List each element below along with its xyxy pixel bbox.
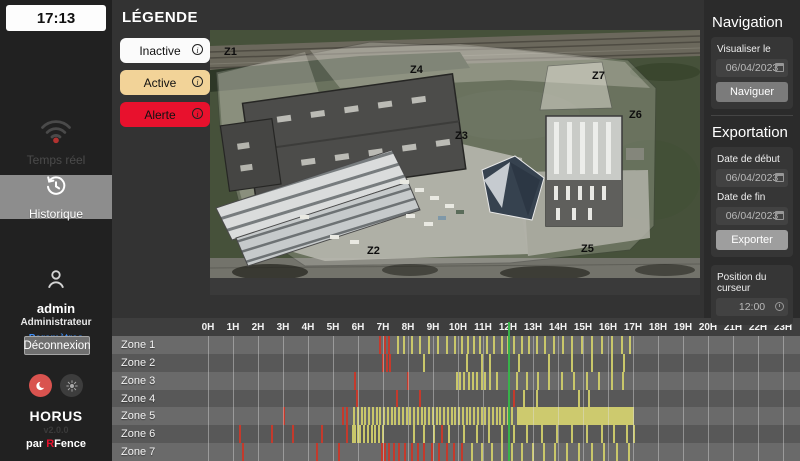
user-block: admin Administrateur Paramètres (0, 265, 112, 346)
active-mark (601, 425, 603, 443)
wifi-icon (39, 118, 73, 149)
alert-mark (384, 443, 386, 461)
legend-button-inactive[interactable]: Inactive i (120, 38, 210, 63)
zone-row-label: Zone 2 (121, 357, 155, 369)
timeline-rows: Zone 1Zone 2Zone 3Zone 4Zone 5Zone 6Zone… (112, 336, 800, 461)
active-mark (398, 407, 400, 425)
active-mark (503, 407, 505, 425)
hour-label: 10H (445, 322, 471, 333)
active-mark (486, 336, 488, 354)
active-mark (611, 354, 613, 372)
alert-mark (513, 390, 515, 408)
username: admin (0, 301, 112, 316)
theme-toggles (0, 374, 112, 397)
alert-mark (431, 443, 433, 461)
active-mark (501, 443, 503, 461)
active-mark (499, 407, 501, 425)
active-mark (496, 407, 498, 425)
active-mark (436, 407, 438, 425)
active-mark (406, 407, 408, 425)
hour-label: 14H (545, 322, 571, 333)
alert-mark (461, 443, 463, 461)
cursor-box: Position du curseur 12:00 (711, 265, 793, 325)
active-mark (413, 407, 415, 425)
active-mark (481, 354, 483, 372)
alert-mark (283, 407, 285, 425)
active-mark (616, 443, 618, 461)
timeline-row-zone-2[interactable]: Zone 2 (112, 354, 800, 372)
active-mark (573, 372, 575, 390)
cursor-position-label: Position du curseur (717, 272, 788, 294)
navigate-button[interactable]: Naviguer (716, 82, 788, 102)
zone-row-label: Zone 6 (121, 428, 155, 440)
alert-mark (239, 425, 241, 443)
cursor-time-input[interactable]: 12:00 (716, 298, 788, 316)
active-mark (586, 372, 588, 390)
active-mark (382, 425, 384, 443)
view-date-label: Visualiser le (717, 44, 788, 55)
alert-mark (271, 425, 273, 443)
hour-label: 3H (270, 322, 296, 333)
active-mark (376, 407, 378, 425)
active-mark (467, 336, 469, 354)
active-mark (364, 407, 366, 425)
active-mark (368, 407, 370, 425)
active-mark (417, 407, 419, 425)
active-mark (532, 443, 534, 461)
zone-row-label: Zone 5 (121, 410, 155, 422)
timeline-row-zone-5[interactable]: Zone 5 (112, 407, 800, 425)
user-icon (42, 280, 70, 297)
active-mark (459, 372, 461, 390)
calendar-icon[interactable] (775, 211, 784, 220)
active-mark (411, 336, 413, 354)
active-mark (526, 372, 528, 390)
active-mark (622, 372, 624, 390)
sidebar-item-label: Historique (29, 207, 83, 221)
active-mark (357, 407, 359, 425)
alert-mark (417, 443, 419, 461)
clock-icon[interactable] (775, 302, 784, 311)
info-icon[interactable]: i (192, 108, 203, 119)
alert-mark (407, 372, 409, 390)
active-mark (571, 336, 573, 354)
active-mark (496, 372, 498, 390)
calendar-icon[interactable] (775, 173, 784, 182)
brand-version: v2.0.0 (0, 425, 112, 435)
alert-mark (388, 443, 390, 461)
active-mark (463, 372, 465, 390)
hour-label: 4H (295, 322, 321, 333)
alert-mark (386, 354, 388, 372)
zone-label-Z7: Z7 (592, 70, 605, 82)
alert-mark (316, 443, 318, 461)
active-mark (521, 443, 523, 461)
navigation-title: Navigation (712, 14, 793, 31)
active-mark (468, 372, 470, 390)
active-mark (629, 336, 631, 354)
active-mark (578, 443, 580, 461)
zone-label-Z6: Z6 (629, 109, 642, 121)
active-mark (541, 425, 543, 443)
active-mark (463, 425, 465, 443)
active-mark (507, 407, 509, 425)
timeline-row-zone-3[interactable]: Zone 3 (112, 372, 800, 390)
brand-byline: par RFence (0, 438, 112, 450)
alert-mark (388, 336, 390, 354)
history-icon (44, 174, 68, 203)
active-mark (626, 425, 628, 443)
light-mode-toggle[interactable] (60, 374, 83, 397)
active-mark (454, 407, 456, 425)
active-mark (513, 336, 515, 354)
calendar-icon[interactable] (775, 63, 784, 72)
info-icon[interactable]: i (192, 76, 203, 87)
alert-mark (398, 443, 400, 461)
alert-mark (419, 390, 421, 408)
active-mark (526, 425, 528, 443)
active-mark (428, 336, 430, 354)
logout-button[interactable]: Déconnexion (24, 336, 90, 355)
timeline-row-zone-1[interactable]: Zone 1 (112, 336, 800, 354)
active-mark (571, 354, 573, 372)
navigation-box: Visualiser le 06/04/2023 Naviguer (711, 37, 793, 109)
hour-label: 9H (420, 322, 446, 333)
active-mark (439, 407, 441, 425)
active-mark (481, 372, 483, 390)
alert-mark (356, 390, 358, 408)
site-map[interactable]: Z1Z4Z7Z6Z3Z2Z5 (210, 30, 700, 295)
active-mark (413, 425, 415, 443)
legend-button-alerte[interactable]: Alerte i (120, 102, 210, 127)
alert-mark (441, 425, 443, 443)
hour-label: 17H (620, 322, 646, 333)
active-mark (432, 407, 434, 425)
zone-label-Z2: Z2 (367, 245, 380, 257)
active-mark (378, 425, 380, 443)
active-mark (359, 425, 361, 443)
active-mark (394, 407, 396, 425)
right-panel: Navigation Visualiser le 06/04/2023 Navi… (704, 0, 800, 318)
active-mark (581, 336, 583, 354)
active-mark (424, 407, 426, 425)
active-mark (548, 354, 550, 372)
alert-mark (411, 443, 413, 461)
alert-mark (453, 443, 455, 461)
alert-mark (438, 443, 440, 461)
start-date-input[interactable]: 06/04/2023 (716, 169, 788, 187)
active-mark (489, 372, 491, 390)
active-mark (561, 372, 563, 390)
active-mark (466, 407, 468, 425)
active-mark (562, 336, 564, 354)
active-mark (363, 425, 365, 443)
active-mark (586, 425, 588, 443)
alert-mark (396, 390, 398, 408)
hour-label: 8H (395, 322, 421, 333)
hour-label: 15H (570, 322, 596, 333)
alert-mark (389, 354, 391, 372)
active-mark (423, 425, 425, 443)
alert-mark (446, 443, 448, 461)
active-mark (491, 443, 493, 461)
export-button[interactable]: Exporter (716, 230, 788, 250)
active-band (517, 407, 635, 425)
active-mark (469, 407, 471, 425)
active-mark (513, 425, 515, 443)
sidebar-item-historique[interactable]: Historique (0, 175, 112, 219)
active-mark (528, 336, 530, 354)
active-mark (379, 407, 381, 425)
dark-mode-toggle[interactable] (29, 374, 52, 397)
legend: Inactive i Active i Alerte i (120, 38, 210, 134)
active-mark (611, 372, 613, 390)
active-mark (511, 443, 513, 461)
active-mark (353, 407, 355, 425)
active-mark (476, 372, 478, 390)
zone-row-label: Zone 1 (121, 339, 155, 351)
active-mark (397, 336, 399, 354)
zone-row-label: Zone 3 (121, 375, 155, 387)
active-mark (511, 407, 513, 425)
info-icon[interactable]: i (192, 44, 203, 55)
clock-display: 17:13 (6, 5, 106, 31)
active-mark (473, 336, 475, 354)
active-mark (554, 443, 556, 461)
hour-label: 11H (470, 322, 496, 333)
view-date-input[interactable]: 06/04/2023 (716, 59, 788, 77)
end-date-input[interactable]: 06/04/2023 (716, 207, 788, 225)
sidebar: 17:13 Temps réel (0, 0, 112, 461)
timeline-row-zone-7[interactable]: Zone 7 (112, 443, 800, 461)
moon-icon (34, 379, 48, 393)
active-mark (447, 407, 449, 425)
active-mark (448, 425, 450, 443)
active-mark (433, 425, 435, 443)
active-mark (484, 407, 486, 425)
zone-row-label: Zone 4 (121, 393, 155, 405)
active-mark (421, 407, 423, 425)
active-mark (481, 443, 483, 461)
legend-title: LÉGENDE (122, 9, 198, 26)
alert-mark (346, 407, 348, 425)
active-mark (613, 425, 615, 443)
active-mark (371, 425, 373, 443)
alert-mark (346, 425, 348, 443)
active-mark (623, 354, 625, 372)
active-mark (501, 425, 503, 443)
active-mark (367, 425, 369, 443)
active-mark (591, 354, 593, 372)
active-mark (628, 443, 630, 461)
divider (711, 115, 793, 116)
brand-block: HORUS v2.0.0 par RFence (0, 408, 112, 450)
active-mark (361, 407, 363, 425)
active-mark (621, 336, 623, 354)
zone-label-Z5: Z5 (581, 243, 594, 255)
alert-mark (379, 336, 381, 354)
active-mark (476, 425, 478, 443)
alert-mark (404, 443, 406, 461)
active-mark (471, 443, 473, 461)
active-mark (488, 425, 490, 443)
legend-button-active[interactable]: Active i (120, 70, 210, 95)
active-mark (374, 425, 376, 443)
alert-mark (381, 443, 383, 461)
active-mark (537, 372, 539, 390)
active-mark (566, 443, 568, 461)
zone-label-Z4: Z4 (410, 64, 424, 76)
active-mark (409, 407, 411, 425)
hour-label: 5H (320, 322, 346, 333)
sun-icon (65, 379, 79, 393)
active-mark (403, 336, 405, 354)
active-mark (492, 407, 494, 425)
active-mark (556, 425, 558, 443)
active-mark (473, 407, 475, 425)
timeline-row-zone-4[interactable]: Zone 4 (112, 390, 800, 408)
export-title: Exportation (712, 124, 793, 141)
hour-label: 2H (245, 322, 271, 333)
zone-row-label: Zone 7 (121, 446, 155, 458)
timeline-hour-header: 0H1H2H3H4H5H6H7H8H9H10H11H12H13H14H15H16… (112, 318, 800, 336)
active-mark (456, 372, 458, 390)
active-mark (553, 336, 555, 354)
alert-mark (354, 372, 356, 390)
active-mark (477, 407, 479, 425)
hour-label: 0H (195, 322, 221, 333)
alert-mark (242, 443, 244, 461)
active-mark (536, 336, 538, 354)
active-mark (437, 336, 439, 354)
hour-label: 19H (670, 322, 696, 333)
app-root: 17:13 Temps réel (0, 0, 800, 461)
timeline-row-zone-6[interactable]: Zone 6 (112, 425, 800, 443)
active-mark (462, 407, 464, 425)
zone-label-Z3: Z3 (455, 130, 468, 142)
hour-label: 1H (220, 322, 246, 333)
active-mark (466, 354, 468, 372)
active-mark (598, 372, 600, 390)
active-mark (443, 407, 445, 425)
zone-label-Z1: Z1 (224, 46, 237, 58)
active-mark (544, 336, 546, 354)
alert-mark (393, 443, 395, 461)
sidebar-item-temps-reel[interactable]: Temps réel (0, 118, 112, 167)
active-mark (536, 390, 538, 408)
hour-label: 6H (345, 322, 371, 333)
active-mark (446, 336, 448, 354)
active-mark (454, 336, 456, 354)
active-mark (591, 443, 593, 461)
active-mark (601, 336, 603, 354)
active-mark (428, 407, 430, 425)
active-mark (472, 372, 474, 390)
active-mark (419, 336, 421, 354)
hour-label: 12H (495, 322, 521, 333)
active-mark (591, 336, 593, 354)
active-mark (451, 407, 453, 425)
start-date-label: Date de début (717, 154, 788, 165)
timeline[interactable]: 0H1H2H3H4H5H6H7H8H9H10H11H12H13H14H15H16… (112, 318, 800, 461)
active-mark (633, 425, 635, 443)
end-date-label: Date de fin (717, 192, 788, 203)
active-mark (588, 390, 590, 408)
export-box: Date de début 06/04/2023 Date de fin 06/… (711, 147, 793, 257)
brand-name: HORUS (0, 408, 112, 424)
active-mark (481, 407, 483, 425)
active-mark (458, 407, 460, 425)
alert-mark (321, 425, 323, 443)
active-mark (521, 336, 523, 354)
user-role: Administrateur (0, 317, 112, 328)
active-mark (402, 407, 404, 425)
active-mark (493, 336, 495, 354)
active-mark (489, 354, 491, 372)
active-mark (523, 390, 525, 408)
active-mark (578, 390, 580, 408)
alert-mark (382, 354, 384, 372)
active-mark (543, 443, 545, 461)
active-mark (423, 354, 425, 372)
alert-mark (384, 336, 386, 354)
alert-mark (342, 407, 344, 425)
active-mark (548, 372, 550, 390)
hour-label: 7H (370, 322, 396, 333)
hour-label: 13H (520, 322, 546, 333)
sidebar-item-label: Temps réel (27, 153, 86, 167)
alert-mark (423, 443, 425, 461)
active-mark (603, 443, 605, 461)
alert-mark (292, 425, 294, 443)
active-mark (488, 407, 490, 425)
active-mark (372, 407, 374, 425)
active-mark (571, 425, 573, 443)
active-mark (383, 407, 385, 425)
active-mark (391, 407, 393, 425)
active-mark (484, 372, 486, 390)
active-mark (461, 336, 463, 354)
active-mark (507, 336, 509, 354)
active-mark (479, 336, 481, 354)
hour-label: 16H (595, 322, 621, 333)
active-mark (516, 372, 518, 390)
active-mark (518, 354, 520, 372)
active-mark (501, 336, 503, 354)
alert-mark (338, 443, 340, 461)
active-mark (387, 407, 389, 425)
active-mark (611, 336, 613, 354)
hour-label: 18H (645, 322, 671, 333)
